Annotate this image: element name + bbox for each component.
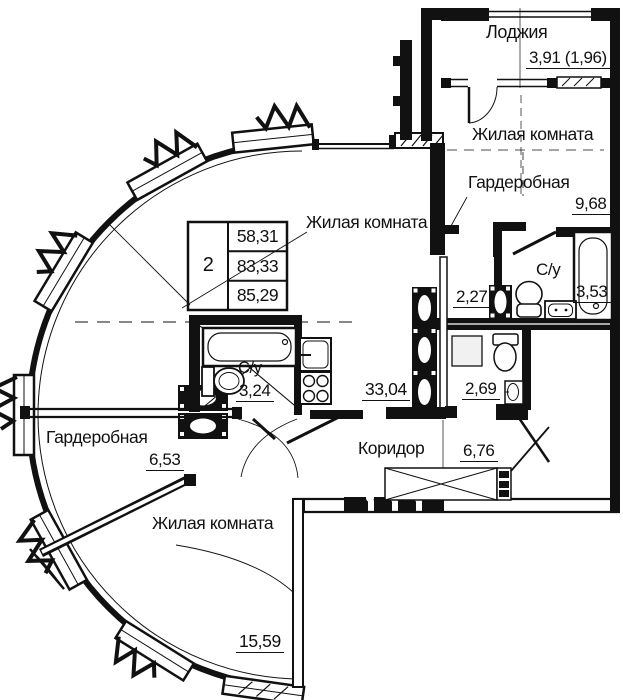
closet-icon [385,468,511,500]
bathtub-icon [574,232,612,320]
room-area-wardrobe-top: 2,27 [453,287,491,308]
room-area-living-top: 9,68 [572,194,610,215]
room-name-bath-main: С/у [238,359,262,378]
washing-machine-icon [452,336,482,366]
window-icon [11,510,87,600]
stove-icon [300,372,331,404]
room-area-loggia: 3,91 (1,96) [526,48,610,69]
table-total-area-with-loggia: 85,29 [228,285,287,306]
toilet-icon [493,334,518,371]
window-icon [104,621,194,699]
door-arc [238,419,298,478]
room-area-wardrobe-left: 6,53 [146,450,184,471]
door-arc [241,419,297,477]
door-arc [176,545,294,593]
room-area-living-main: 33,04 [362,379,410,401]
room-name-wardrobe-left: Гардеробная [46,427,147,448]
room-name-loggia: Лоджия [486,22,547,43]
window-icon [117,124,207,200]
kitchen-sink-icon [300,338,331,371]
floor-plan: Лоджия 3,91 (1,96) Жилая комната 9,68 Га… [0,0,623,700]
room-name-corridor: Коридор [358,438,424,459]
window-icon [16,221,93,311]
washbasin-icon [545,301,576,319]
room-area-bath-top: 3,53 [573,282,611,303]
leader-line [108,223,190,305]
room-name-bath-top: С/у [536,260,560,280]
vent-shaft-small [489,285,512,319]
room-name-living-bottom: Жилая комната [152,513,273,534]
room-name-living-main: Жилая комната [306,212,427,233]
door-leaf [513,232,556,254]
toilet-icon [516,282,542,318]
room-area-corridor: 6,76 [460,441,498,462]
table-apartment-number: 2 [188,254,228,277]
table-total-area: 83,33 [228,256,287,277]
window-icon [230,103,314,153]
stepped-exterior-wall [393,8,443,141]
loggia-door [469,87,497,123]
door-arc [469,87,497,123]
label-leader-line [451,197,467,226]
window-icon [222,676,304,700]
room-name-wardrobe-top: Гардеробная [468,172,569,193]
table-living-area: 58,31 [228,226,287,247]
room-area-laundry: 2,69 [462,379,500,400]
room-area-living-bottom: 15,59 [236,631,284,653]
room-area-bath-main: 3,24 [236,381,274,402]
washbasin-icon [505,381,523,404]
floor-plan-drawing [0,0,623,700]
vent-shaft-column [412,287,437,413]
room-name-living-top: Жилая комната [472,124,593,145]
